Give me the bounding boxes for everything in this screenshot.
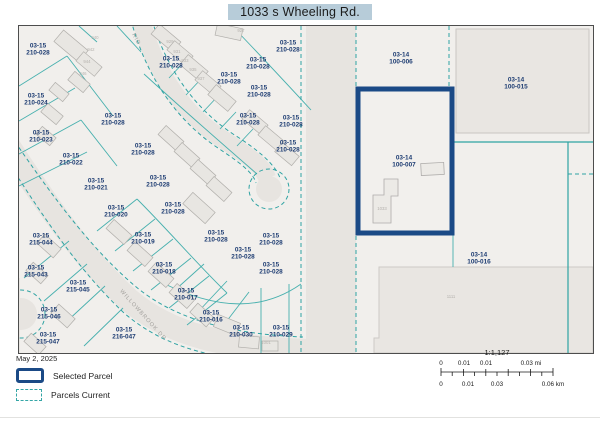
scalebar-km-label: 0.06 km xyxy=(542,381,564,388)
scalebar-km-labels: 00.010.030.06 km xyxy=(439,381,564,388)
building-number: 1111 xyxy=(447,294,456,299)
scalebar-mi-label: 0.01 xyxy=(458,360,471,367)
legend-item-selected-parcel: Selected Parcel xyxy=(16,368,113,383)
scalebar-mi-label: 0 xyxy=(439,360,443,367)
map-canvas[interactable]: 03-15210-02803-15210-02803-15210-02803-1… xyxy=(19,26,593,353)
building-number: 935 xyxy=(189,67,197,72)
scalebar-km-label: 0.03 xyxy=(491,381,504,388)
map-date: May 2, 2025 xyxy=(16,354,113,363)
building-number: 929 xyxy=(166,39,174,44)
building-number: 933 xyxy=(181,58,189,63)
building-number: 1001 xyxy=(261,340,271,345)
scalebar: 1:1,127 00.010.010.03 mi 00.010.030.06 k… xyxy=(415,345,595,400)
parcels-current-swatch xyxy=(16,389,42,401)
scalebar-ticks xyxy=(441,368,553,376)
building-number: 940 xyxy=(91,35,99,40)
scalebar-miles-labels: 00.010.010.03 mi xyxy=(439,360,541,367)
building-number: 942 xyxy=(87,47,95,52)
legend-label: Parcels Current xyxy=(51,390,110,400)
building-number: 1033 xyxy=(377,206,387,211)
legend-label: Selected Parcel xyxy=(53,371,113,381)
ridge-culdesac xyxy=(256,176,282,202)
legend: May 2, 2025 Selected Parcel Parcels Curr… xyxy=(16,354,113,407)
scalebar-km-label: 0.01 xyxy=(462,381,475,388)
page: 1033 s Wheeling Rd. xyxy=(0,0,600,428)
page-title: 1033 s Wheeling Rd. xyxy=(228,4,372,20)
building-number: 927 xyxy=(237,28,245,33)
map-frame: 03-15210-02803-15210-02803-15210-02803-1… xyxy=(18,25,594,354)
left-edge-road xyxy=(19,278,20,353)
outbuilding-shape xyxy=(421,162,445,175)
scale-ratio: 1:1,127 xyxy=(484,348,509,357)
building-number: 946 xyxy=(79,71,87,76)
title-bar: 1033 s Wheeling Rd. xyxy=(0,3,600,21)
scalebar-mi-label: 0.01 xyxy=(480,360,493,367)
bottom-divider xyxy=(0,417,600,418)
legend-item-parcels-current: Parcels Current xyxy=(16,389,113,401)
selected-parcel-swatch xyxy=(16,368,44,383)
wheeling-road xyxy=(306,26,356,353)
scalebar-km-label: 0 xyxy=(439,381,443,388)
building-number: 937 xyxy=(197,76,205,81)
building-number: 944 xyxy=(83,59,91,64)
scalebar-mi-label: 0.03 mi xyxy=(521,360,542,367)
building-number: 931 xyxy=(173,49,181,54)
parcel-100-016-shape xyxy=(374,267,593,353)
